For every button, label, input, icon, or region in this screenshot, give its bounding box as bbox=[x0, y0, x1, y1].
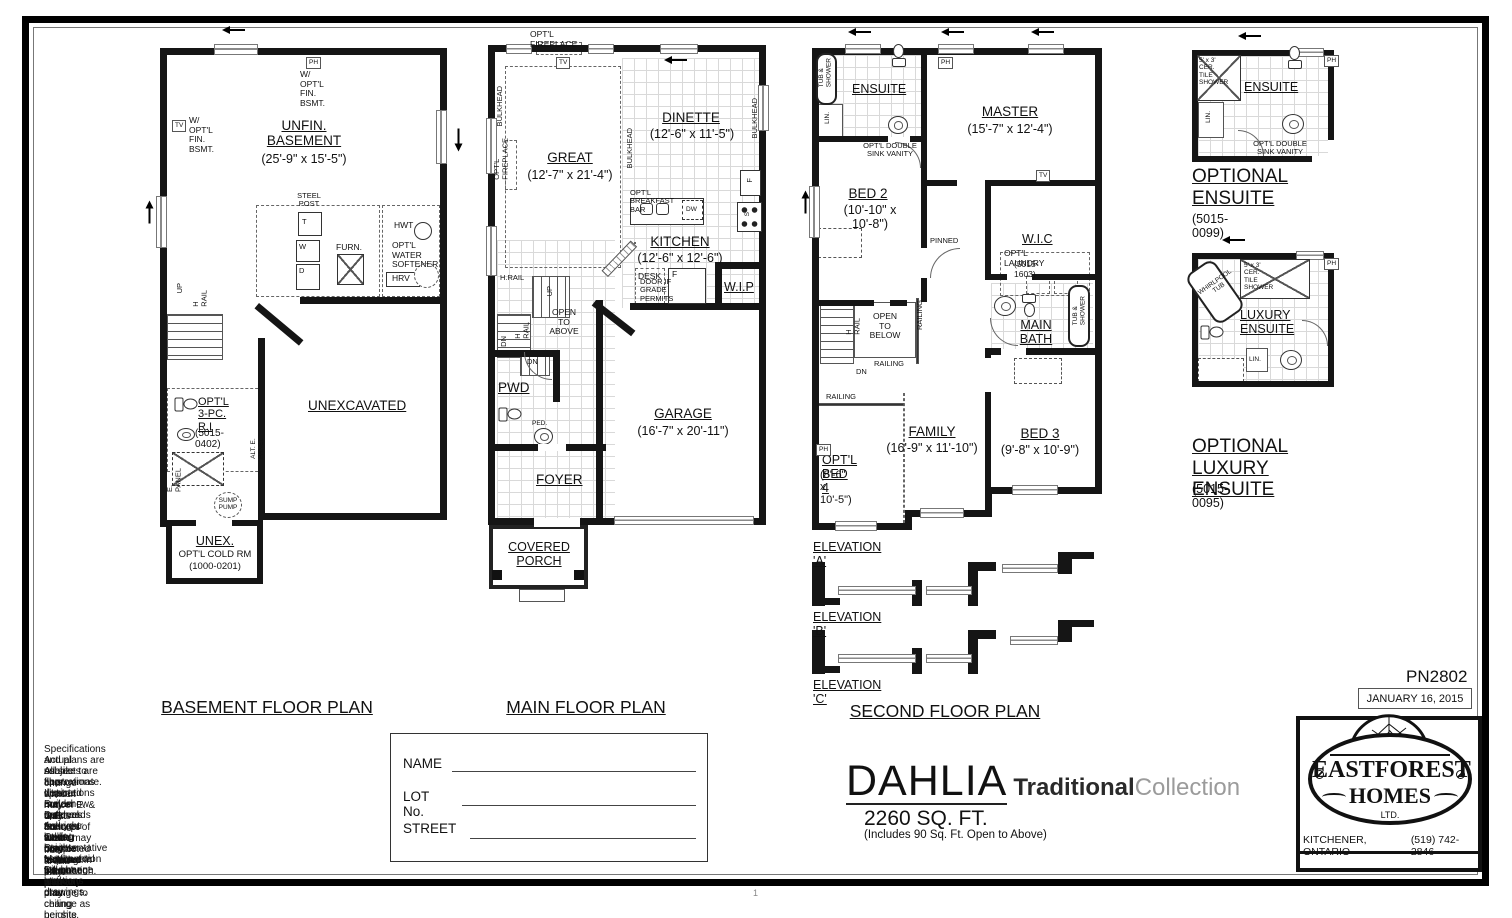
optional-wall bbox=[903, 393, 905, 523]
window bbox=[809, 186, 820, 238]
breakfast-bar-label: OPT'L BREAKFAST BAR bbox=[630, 189, 674, 214]
room-label-pwd: PWD bbox=[498, 380, 530, 395]
optional-luxury-code: (5015-0095) bbox=[1192, 482, 1228, 510]
wall bbox=[812, 300, 874, 306]
wall bbox=[921, 278, 927, 302]
wall bbox=[596, 300, 603, 525]
arrow-shaft bbox=[230, 29, 245, 31]
wall bbox=[300, 297, 447, 304]
window bbox=[660, 44, 698, 54]
elevation-window bbox=[1010, 636, 1058, 645]
stairs bbox=[167, 314, 223, 360]
pedestal-sink bbox=[534, 428, 553, 445]
room-size-master: (15'-7" x 12'-4") bbox=[953, 122, 1067, 136]
logo-city: KITCHENER, ONTARIO bbox=[1303, 834, 1411, 858]
form-name-label: NAME bbox=[403, 756, 442, 771]
arrow-head bbox=[1031, 28, 1039, 36]
washer-label: W bbox=[299, 243, 306, 251]
fridge-box bbox=[740, 170, 761, 196]
linen-label: LIN. bbox=[1205, 111, 1212, 123]
window bbox=[1028, 44, 1064, 54]
window-arrow-icon bbox=[802, 191, 810, 214]
window bbox=[1012, 485, 1058, 495]
wall bbox=[921, 48, 927, 140]
steel-post-label: STEEL POST bbox=[292, 192, 326, 209]
window-arrow-icon bbox=[664, 56, 687, 64]
room-label-luxury-ensuite: LUXURY ENSUITE bbox=[1240, 308, 1294, 336]
porch-label: COVERED PORCH bbox=[504, 540, 574, 568]
title-second-plan: SECOND FLOOR PLAN bbox=[845, 702, 1045, 722]
room-label-ensuite: ENSUITE bbox=[852, 82, 906, 96]
stairs-hrail-label: H RAIL bbox=[192, 290, 209, 307]
optional-ensuite-title: OPTIONAL ENSUITE bbox=[1192, 166, 1288, 210]
wall bbox=[1032, 274, 1095, 280]
bulkhead-right-label: BULKHEAD bbox=[751, 98, 759, 138]
tub-shower-label: TUB & SHOWER bbox=[818, 58, 833, 87]
note-fin-bsmt-top: W/ OPT'L FIN. BSMT. bbox=[300, 70, 325, 108]
window bbox=[214, 44, 258, 55]
railing-label: RAILING bbox=[916, 300, 924, 330]
window bbox=[835, 521, 877, 531]
wall bbox=[985, 392, 991, 487]
model-area: 2260 SQ. FT. bbox=[864, 807, 988, 831]
elevation-wall bbox=[1072, 552, 1094, 559]
note-fin-bsmt-left: W/ OPT'L FIN. BSMT. bbox=[189, 116, 214, 154]
arrow-head bbox=[941, 28, 949, 36]
wall bbox=[921, 140, 927, 248]
ped-sink-label: PED. bbox=[532, 420, 547, 427]
ph-marker: PH bbox=[1324, 258, 1339, 270]
wall bbox=[985, 348, 991, 358]
sink bbox=[1280, 350, 1302, 370]
form-box bbox=[390, 733, 708, 862]
logo-left-medallion-icon bbox=[1315, 770, 1324, 779]
tv-marker: TV bbox=[1036, 170, 1050, 182]
wall bbox=[1328, 253, 1334, 383]
bulkhead-mid-label: BULKHEAD bbox=[626, 128, 634, 168]
room-size-bed4: (8'-6" x 10'-5") bbox=[820, 469, 852, 506]
optl-fireplace-top-label: OPT'L FIREPLACE bbox=[530, 30, 577, 49]
logo-rule-top bbox=[1330, 754, 1450, 756]
stairs-up-label: UP bbox=[546, 286, 554, 296]
room-size-kitchen: (12'-6" x 12'-6") bbox=[632, 251, 728, 265]
elevation-wall bbox=[1072, 620, 1094, 627]
window-arrow-icon bbox=[146, 201, 154, 224]
shower-label: 5' x 3' CER. TILE SHOWER bbox=[1199, 57, 1228, 86]
room-label-great: GREAT bbox=[530, 150, 610, 165]
wall bbox=[890, 300, 907, 306]
elevation-window bbox=[926, 654, 972, 663]
sink bbox=[888, 116, 908, 134]
softener-label: OPT'L WATER SOFTENER bbox=[392, 241, 438, 270]
plan-code: PN2802 bbox=[1406, 667, 1467, 686]
wall bbox=[553, 350, 560, 402]
elevation-window bbox=[838, 654, 916, 663]
toilet bbox=[892, 58, 906, 67]
form-street-label: STREET bbox=[403, 821, 456, 836]
wall bbox=[985, 274, 1007, 280]
room-label-bed2: BED 2 bbox=[838, 186, 898, 201]
e-panel-label: E. PANEL bbox=[166, 468, 183, 492]
logo-right-medallion-icon bbox=[1456, 770, 1465, 779]
model-collection-secondary: Collection bbox=[1135, 774, 1240, 802]
unexcavated-label: UNEXCAVATED bbox=[308, 398, 406, 413]
arrow-head bbox=[222, 26, 230, 34]
window-arrow-icon bbox=[941, 28, 964, 36]
stairs-up-label: UP bbox=[176, 283, 184, 293]
wall bbox=[1192, 156, 1312, 162]
arrow-shaft bbox=[149, 209, 151, 224]
optional-luxury-title-line1: OPTIONAL bbox=[1192, 436, 1288, 457]
cold-room-label: UNEX. bbox=[180, 534, 250, 548]
elevation-window bbox=[838, 586, 916, 595]
cold-room-code: (1000-0201) bbox=[174, 562, 256, 573]
ph-marker: PH bbox=[816, 444, 831, 456]
arrow-shaft bbox=[458, 129, 460, 144]
hwt-label: HWT bbox=[394, 221, 413, 231]
linen-label: LIN. bbox=[1249, 356, 1261, 363]
stairs-dn2-label: DN bbox=[527, 358, 538, 366]
porch-step bbox=[519, 589, 565, 602]
toilet bbox=[1288, 60, 1302, 69]
arrow-head bbox=[455, 144, 463, 152]
dryer-label: D bbox=[299, 267, 304, 275]
arrow-head bbox=[664, 56, 672, 64]
room-label-dinette: DINETTE bbox=[656, 110, 726, 125]
ph-marker: PH bbox=[938, 57, 953, 69]
room-size-garage: (16'-7" x 20'-11") bbox=[626, 424, 740, 438]
elevation-window bbox=[926, 586, 972, 595]
wall bbox=[1026, 348, 1095, 355]
window-arrow-icon bbox=[222, 26, 245, 34]
room-label-kitchen: KITCHEN bbox=[644, 234, 716, 249]
arrow-shaft bbox=[672, 59, 687, 61]
window bbox=[588, 44, 614, 54]
arrow-shaft bbox=[1230, 239, 1245, 241]
elevation-b-label: ELEVATION 'B' bbox=[813, 610, 881, 638]
arrow-head bbox=[146, 201, 154, 209]
wall bbox=[630, 303, 766, 310]
window bbox=[506, 44, 532, 54]
room-label-wic: W.I.C bbox=[1022, 232, 1053, 246]
open-to-below-label: OPEN TO BELOW bbox=[862, 312, 908, 341]
railing bbox=[816, 403, 904, 406]
window bbox=[758, 85, 769, 131]
sink bbox=[1282, 114, 1304, 134]
page-mark: 1 bbox=[753, 888, 758, 898]
arrow-head bbox=[1238, 32, 1246, 40]
room-size-bed2: (10'-10" x 10'-8") bbox=[824, 203, 916, 231]
logo-suffix: LTD. bbox=[1312, 810, 1468, 820]
arrow-shaft bbox=[1246, 35, 1261, 37]
stove-box bbox=[737, 202, 762, 232]
window bbox=[436, 110, 447, 164]
closet bbox=[1198, 358, 1244, 382]
model-name: DAHLIA bbox=[846, 760, 1007, 805]
furnace-label: FURN. bbox=[336, 243, 362, 253]
window bbox=[845, 44, 881, 54]
vanity-label: OPT'L DOUBLE SINK VANITY bbox=[862, 142, 918, 159]
linen-label: LIN. bbox=[824, 112, 831, 124]
open-to-above-label: OPEN TO ABOVE bbox=[544, 308, 584, 337]
tv-marker: TV bbox=[556, 57, 570, 69]
wall bbox=[812, 48, 819, 530]
porch-post bbox=[492, 570, 502, 580]
elevation-window bbox=[1002, 564, 1058, 573]
title-basement-plan: BASEMENT FLOOR PLAN bbox=[152, 698, 382, 718]
window-arrow-icon bbox=[848, 28, 871, 36]
window-arrow-icon bbox=[1222, 236, 1245, 244]
pinned-label: PINNED bbox=[930, 237, 958, 245]
dishwasher-label: DW bbox=[686, 206, 697, 213]
shower-label: 5' x 3' CER. TILE SHOWER bbox=[1244, 262, 1273, 291]
wall bbox=[1192, 381, 1334, 387]
elevation-wall bbox=[968, 630, 996, 639]
logo-flourish-left-icon bbox=[1322, 793, 1346, 801]
tub-shower-label: TUB & SHOWER bbox=[1072, 296, 1087, 325]
front-door-opening bbox=[534, 518, 580, 527]
window-arrow-icon bbox=[455, 129, 463, 152]
form-lot-label: LOT No. bbox=[403, 789, 429, 819]
arrow-shaft bbox=[856, 31, 871, 33]
arrow-shaft bbox=[1039, 31, 1054, 33]
room-size-family: (16'-9" x 11'-10") bbox=[876, 441, 988, 455]
room-label-ensuite-detail: ENSUITE bbox=[1244, 80, 1298, 94]
laundry-code-label: (5015-1603) bbox=[1014, 260, 1039, 279]
tank-label: T bbox=[302, 218, 307, 226]
logo-flourish-right-icon bbox=[1434, 793, 1458, 801]
date-box: JANUARY 16, 2015 bbox=[1358, 688, 1472, 709]
toilet bbox=[499, 408, 508, 422]
foyer-opening bbox=[538, 444, 566, 451]
model-area-note: (Includes 90 Sq. Ft. Open to Above) bbox=[864, 829, 1047, 842]
room-label-basement: UNFIN. BASEMENT bbox=[258, 118, 350, 148]
window bbox=[1296, 48, 1324, 57]
form-street-line bbox=[470, 838, 696, 839]
ph-marker: PH bbox=[1324, 55, 1339, 67]
elevation-wall bbox=[968, 562, 996, 571]
closet bbox=[1014, 358, 1062, 384]
room-size-basement: (25'-9" x 15'-5") bbox=[250, 152, 358, 166]
stove-label: S bbox=[744, 212, 751, 216]
closet bbox=[818, 228, 862, 258]
elevation-a-label: ELEVATION 'A' bbox=[813, 540, 881, 568]
wall bbox=[160, 48, 447, 55]
elevation-wall bbox=[1058, 620, 1072, 642]
wall bbox=[258, 513, 447, 520]
cold-room-sub: OPT'L COLD RM bbox=[174, 550, 256, 561]
toilet bbox=[175, 398, 184, 412]
room-label-bed3: BED 3 bbox=[1008, 426, 1072, 441]
model-collection-primary: Traditional bbox=[1013, 774, 1134, 802]
alt-e-panel-label: ALT. E. PANEL bbox=[250, 438, 265, 459]
elevation-wall bbox=[1058, 552, 1072, 574]
toilet bbox=[1201, 326, 1210, 340]
hrv-label: HRV bbox=[392, 274, 410, 284]
sink bbox=[177, 428, 195, 441]
tv-marker: TV bbox=[172, 120, 186, 132]
elevation-wall bbox=[812, 666, 840, 673]
room-size-dinette: (12'-6" x 11'-5") bbox=[642, 127, 742, 141]
porch-post bbox=[574, 570, 584, 580]
window-arrow-icon bbox=[1031, 28, 1054, 36]
wall bbox=[160, 48, 167, 527]
arrow-shaft bbox=[949, 31, 964, 33]
room-label-garage: GARAGE bbox=[638, 406, 728, 421]
logo-address-row: KITCHENER, ONTARIO (519) 742-2846 bbox=[1303, 834, 1479, 858]
optional-bath-code: (5015-0402) bbox=[195, 428, 224, 450]
arrow-head bbox=[802, 191, 810, 199]
room-label-main-bath: MAIN BATH bbox=[1010, 318, 1062, 346]
room-label-foyer: FOYER bbox=[536, 472, 583, 487]
wall bbox=[985, 186, 991, 278]
sump-pump-label: SUMP PUMP bbox=[215, 497, 241, 512]
furnace-box bbox=[337, 254, 364, 285]
plan-sheet: PH W/ OPT'L FIN. BSMT. TV W/ OPT'L FIN. … bbox=[0, 0, 1512, 918]
ph-marker: PH bbox=[306, 57, 321, 69]
room-label-master: MASTER bbox=[962, 104, 1058, 119]
title-main-plan: MAIN FLOOR PLAN bbox=[496, 698, 676, 718]
window-arrow-icon bbox=[1238, 32, 1261, 40]
room-size-great: (12'-7" x 21'-4") bbox=[517, 168, 623, 182]
model-title-row: DAHLIA Traditional Collection bbox=[846, 760, 1240, 805]
form-name-line bbox=[452, 771, 696, 772]
logo-rule-bottom bbox=[1296, 851, 1482, 854]
wall bbox=[1095, 48, 1102, 494]
elevation-wall bbox=[812, 598, 840, 605]
hwt-tank bbox=[414, 222, 432, 240]
fridge-label: F bbox=[746, 178, 754, 183]
stairs-dn-label: DN bbox=[856, 368, 867, 376]
window bbox=[938, 44, 974, 54]
optl-fireplace-left-label: OPT'L FIREPLACE bbox=[493, 138, 510, 180]
garage-door bbox=[614, 516, 754, 525]
form-lot-line bbox=[462, 805, 696, 806]
railing-label: RAILING bbox=[826, 393, 856, 401]
logo-brand-top: EASTFOREST bbox=[1312, 757, 1468, 784]
window bbox=[920, 508, 964, 518]
room-size-bed3: (9'-8" x 10'-9") bbox=[994, 443, 1086, 457]
sink bbox=[994, 296, 1016, 316]
railing-label: RAILING bbox=[874, 360, 904, 368]
arrow-head bbox=[1222, 236, 1230, 244]
arrow-head bbox=[848, 28, 856, 36]
wall bbox=[258, 338, 265, 520]
window bbox=[156, 196, 167, 248]
window bbox=[486, 226, 497, 276]
stairs-dn-label: DN bbox=[500, 336, 508, 347]
logo-phone: (519) 742-2846 bbox=[1411, 834, 1479, 858]
hrail-label: H RAIL bbox=[845, 318, 862, 335]
hrail-label: H.RAIL bbox=[500, 274, 524, 282]
room-label-wip: W.I.P bbox=[724, 280, 754, 294]
date-text: JANUARY 16, 2015 bbox=[1367, 693, 1464, 705]
room-label-family: FAMILY bbox=[890, 424, 974, 439]
vanity-label: OPT'L DOUBLE SINK VANITY bbox=[1252, 140, 1308, 157]
toilet bbox=[1022, 294, 1036, 303]
note-line: Do not scale drawings. bbox=[44, 865, 87, 899]
door-grade-label: DOOR IF GRADE PERMITS bbox=[640, 278, 673, 303]
bulkhead-left-label: BULKHEAD bbox=[496, 86, 504, 126]
arrow-shaft bbox=[805, 199, 807, 214]
stairs-hrail2-label: H RAIL bbox=[514, 322, 531, 339]
